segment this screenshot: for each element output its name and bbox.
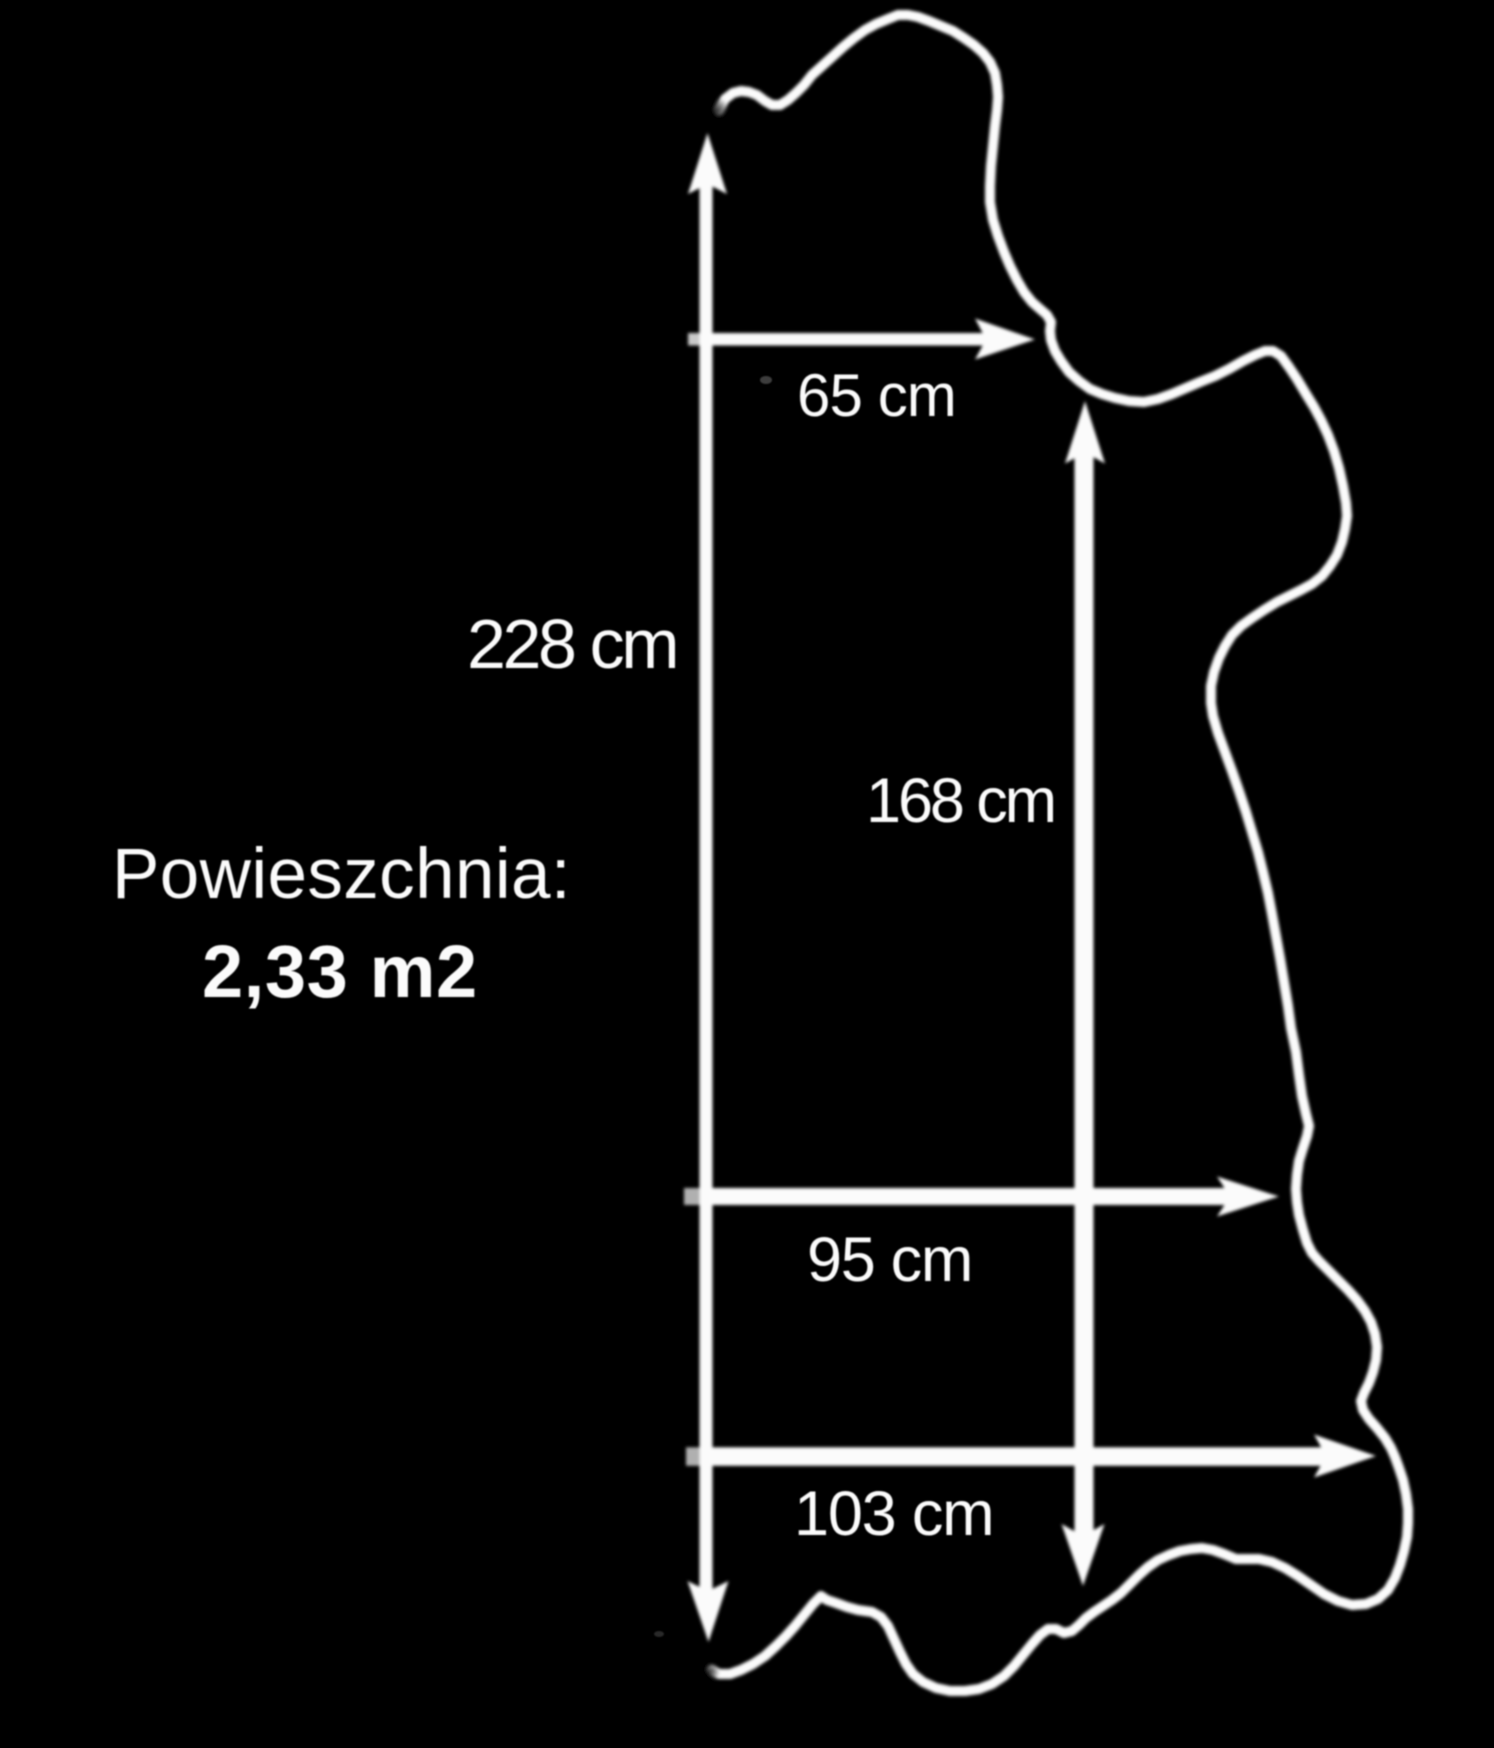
svg-text:65 cm: 65 cm [797, 362, 956, 429]
svg-text:228 cm: 228 cm [467, 605, 676, 683]
svg-text:168 cm: 168 cm [866, 766, 1054, 836]
svg-text:2,33 m2: 2,33 m2 [202, 930, 478, 1013]
svg-text:103 cm: 103 cm [794, 1479, 993, 1549]
svg-text:Powieszchnia:: Powieszchnia: [112, 835, 571, 914]
svg-text:95 cm: 95 cm [807, 1225, 972, 1295]
